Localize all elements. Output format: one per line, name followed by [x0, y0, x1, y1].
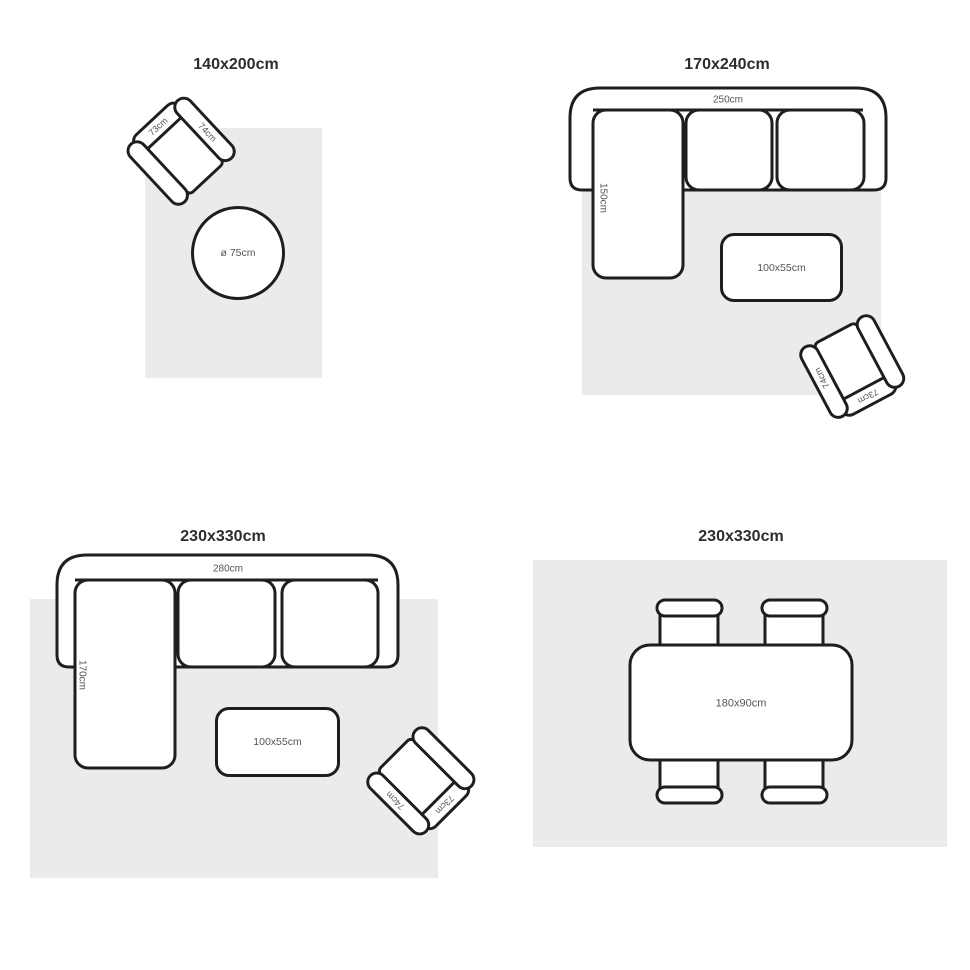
round-table: ø 75cm	[191, 206, 285, 300]
armchair-back-label: 73cm	[433, 793, 456, 816]
dining-chair-seat	[660, 758, 718, 792]
rug-size-guide: 140x200cm 73cm 74cm ø 75cm 170x240cm	[0, 0, 970, 970]
panel-230x330-sofa: 230x330cm 280cm 170cm 100x55cm 73cm 74cm	[0, 0, 970, 970]
armchair-seat	[145, 115, 225, 195]
armchair-arm-label: 74cm	[812, 366, 831, 390]
sofa-cushion	[686, 110, 772, 190]
sectional-sofa: 280cm 170cm	[53, 551, 403, 781]
round-table-label: ø 75cm	[220, 247, 255, 259]
rug	[533, 560, 947, 847]
armchair-back	[837, 374, 899, 418]
sofa-shell	[570, 88, 886, 190]
rug	[582, 190, 881, 395]
sofa-width-label: 280cm	[213, 564, 243, 575]
sofa-chaise	[75, 580, 175, 768]
dining-table-label: 180x90cm	[716, 698, 767, 710]
armchair-left-arm	[409, 724, 477, 792]
panel-140x200: 140x200cm 73cm 74cm ø 75cm	[0, 0, 970, 970]
dining-chair-back	[657, 787, 722, 803]
coffee-table-label: 100x55cm	[253, 736, 301, 748]
armchair-right-arm	[798, 343, 851, 421]
armchair-seat	[377, 737, 457, 817]
sofa-cushion	[282, 580, 378, 667]
dining-chair-seat	[765, 758, 823, 792]
sofa-depth-label: 170cm	[77, 660, 88, 690]
dining-chair-seat	[765, 604, 823, 647]
armchair: 73cm 74cm	[793, 308, 913, 428]
panel-title: 230x330cm	[123, 527, 323, 547]
sofa-shell	[57, 555, 398, 667]
rug	[145, 128, 322, 378]
armchair: 73cm 74cm	[120, 90, 240, 210]
armchair-arm-label: 74cm	[384, 789, 407, 812]
armchair-back	[417, 777, 473, 833]
sectional-sofa: 250cm 150cm	[566, 84, 890, 296]
panel-170x240: 170x240cm 250cm 150cm 100x55cm 73cm 74cm	[0, 0, 970, 970]
panel-230x330-dining: 230x330cm 180x90cm	[0, 0, 970, 970]
armchair: 73cm 74cm	[362, 722, 482, 842]
coffee-table: 100x55cm	[215, 707, 340, 777]
armchair-seat	[814, 322, 887, 402]
sofa-cushion	[178, 580, 275, 667]
armchair-back-label: 73cm	[856, 387, 880, 406]
dining-set: 180x90cm	[618, 588, 868, 823]
armchair-right-arm	[364, 769, 432, 837]
panel-title: 140x200cm	[136, 55, 336, 75]
sofa-chaise	[593, 110, 683, 278]
armchair-back	[130, 99, 187, 154]
armchair-left-arm	[124, 138, 191, 208]
dining-table	[630, 645, 852, 760]
sofa-width-label: 250cm	[713, 95, 743, 106]
rug	[30, 599, 438, 878]
dining-chair-back	[762, 600, 827, 616]
panel-title: 230x330cm	[641, 527, 841, 547]
armchair-left-arm	[854, 313, 907, 391]
panel-title: 170x240cm	[627, 55, 827, 75]
dining-chair-seat	[660, 604, 718, 647]
armchair-right-arm	[171, 94, 238, 164]
sofa-cushion	[777, 110, 864, 190]
coffee-table-label: 100x55cm	[757, 262, 805, 274]
dining-chair-back	[762, 787, 827, 803]
sofa-depth-label: 150cm	[598, 183, 609, 213]
armchair-back-label: 73cm	[147, 115, 170, 137]
coffee-table: 100x55cm	[720, 233, 843, 302]
armchair-arm-label: 74cm	[196, 121, 218, 144]
dining-chair-back	[657, 600, 722, 616]
